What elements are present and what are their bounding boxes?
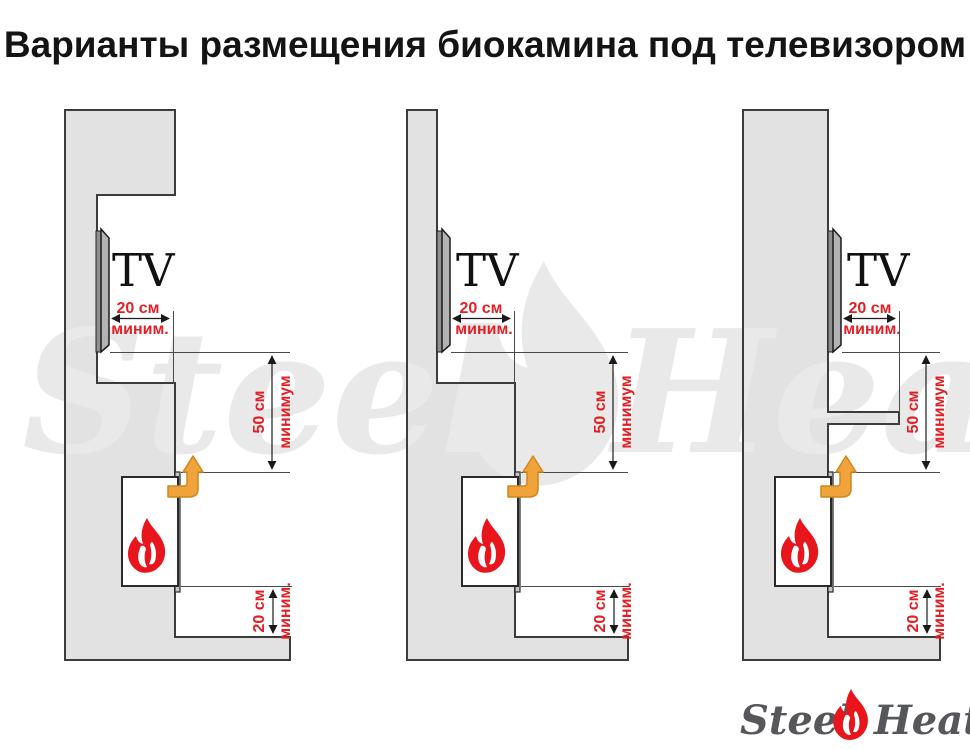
- placement-diagrams: Steel Heat TV 20 см миним. 50 см минимум: [0, 0, 970, 749]
- dimension-qualifier: миним.: [618, 582, 635, 639]
- dimension-qualifier: минимум: [931, 375, 948, 448]
- dimension-value: 20 см: [117, 300, 160, 317]
- dimension-value: 20 см: [460, 300, 503, 317]
- dimension-value: 50 см: [251, 391, 268, 434]
- logo-word-heat: Heat: [873, 697, 970, 744]
- dimension-value: 20 см: [905, 590, 922, 633]
- biofireplace-icon: [775, 456, 856, 592]
- dimension-bottom-gap: 20 см миним.: [905, 582, 948, 639]
- brand-logo: Steel Heat: [740, 689, 970, 744]
- dimension-qualifier: миним.: [931, 582, 948, 639]
- dimension-value: 50 см: [592, 391, 609, 434]
- tv-icon: [437, 229, 450, 352]
- dimension-bottom-gap: 20 см миним.: [251, 582, 294, 639]
- dimension-qualifier: миним.: [455, 321, 512, 338]
- tv-icon: [828, 229, 841, 352]
- page: Варианты размещения биокамина под телеви…: [0, 0, 970, 749]
- tv-label: TV: [456, 244, 520, 297]
- tv-label: TV: [112, 244, 176, 297]
- biofireplace-icon: [122, 456, 203, 592]
- tv-icon: [96, 229, 109, 352]
- dimension-value: 50 см: [905, 391, 922, 434]
- dimension-value: 20 см: [849, 300, 892, 317]
- dimension-value: 20 см: [251, 590, 268, 633]
- dimension-qualifier: миним.: [111, 321, 168, 338]
- dimension-value: 20 см: [592, 590, 609, 633]
- dimension-qualifier: миним.: [843, 321, 900, 338]
- biofireplace-icon: [462, 456, 543, 592]
- dimension-qualifier: минимум: [618, 375, 635, 448]
- tv-label: TV: [847, 244, 911, 297]
- dimension-qualifier: миним.: [277, 582, 294, 639]
- dimension-bottom-gap: 20 см миним.: [592, 582, 635, 639]
- dimension-qualifier: минимум: [277, 375, 294, 448]
